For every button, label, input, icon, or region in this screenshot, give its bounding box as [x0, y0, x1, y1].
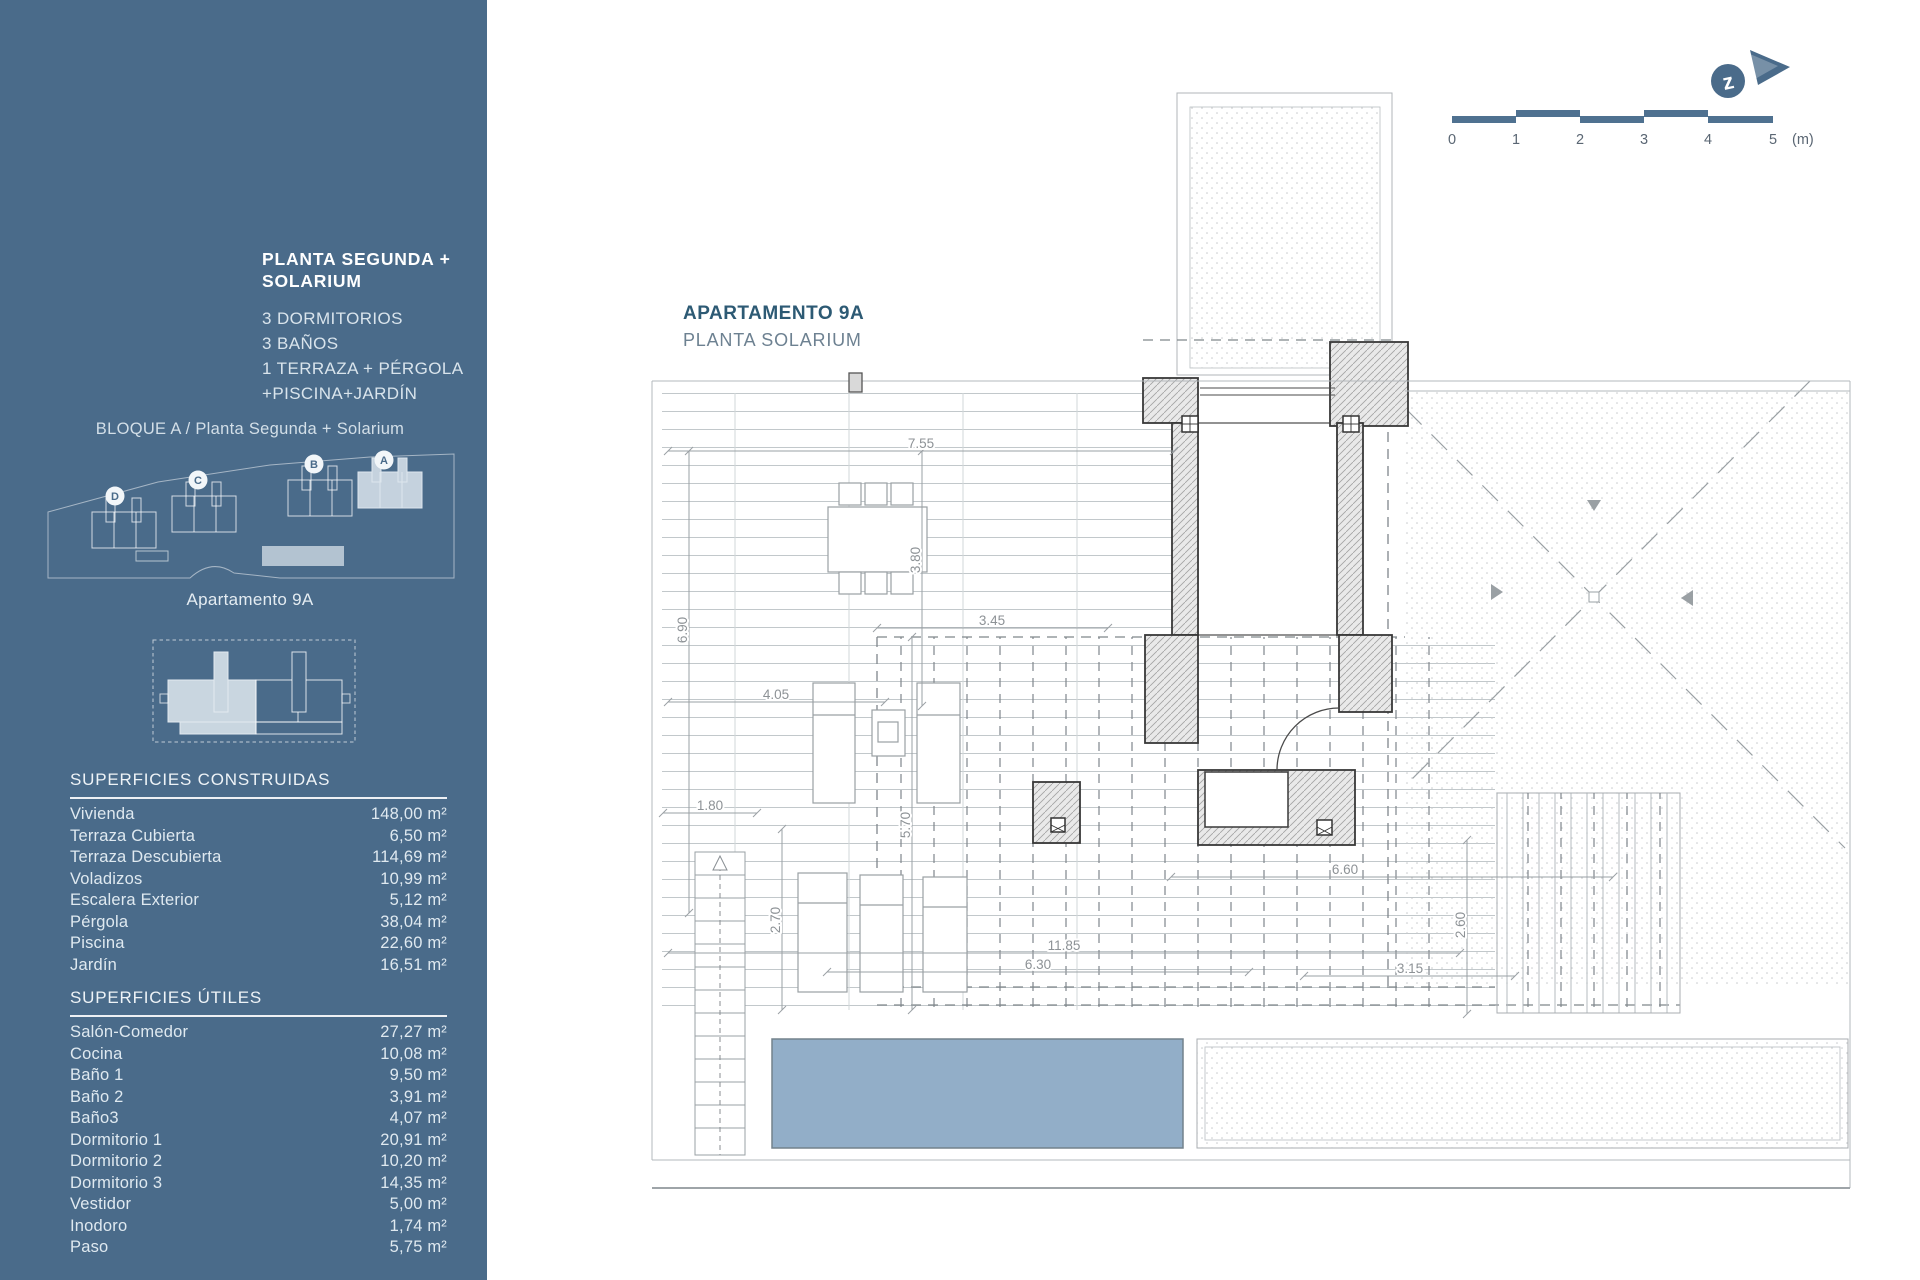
- surface-label: Vestidor: [70, 1194, 131, 1216]
- unit-body-highlight: [168, 680, 256, 722]
- useful-surfaces-table: SUPERFICIES ÚTILES Salón-Comedor27,27 m²…: [70, 988, 447, 1259]
- table-row: Terraza Descubierta114,69 m²: [70, 847, 447, 869]
- built-surfaces-title: SUPERFICIES CONSTRUIDAS: [70, 770, 447, 799]
- floor-title-line2: SOLARIUM: [262, 270, 451, 292]
- built-surfaces-table: SUPERFICIES CONSTRUIDAS Vivienda148,00 m…: [70, 770, 447, 976]
- table-row: Cocina10,08 m²: [70, 1044, 447, 1066]
- surface-label: Voladizos: [70, 869, 142, 891]
- sun-lounger: [860, 875, 903, 992]
- core-lower-opening: [1205, 772, 1288, 827]
- surface-label: Inodoro: [70, 1216, 127, 1238]
- unit-strip-right: [256, 722, 342, 734]
- surface-label: Dormitorio 2: [70, 1151, 162, 1173]
- useful-surfaces-rows: Salón-Comedor27,27 m²Cocina10,08 m²Baño …: [70, 1022, 447, 1259]
- surface-value: 5,75 m²: [390, 1237, 447, 1259]
- chair: [839, 483, 861, 505]
- surface-value: 20,91 m²: [380, 1130, 447, 1152]
- built-surfaces-rows: Vivienda148,00 m²Terraza Cubierta6,50 m²…: [70, 804, 447, 976]
- table-row: Salón-Comedor27,27 m²: [70, 1022, 447, 1044]
- site-pool-small: [136, 551, 168, 561]
- block-label: BLOQUE A / Planta Segunda + Solarium: [50, 420, 450, 439]
- dim-label: 3.15: [1397, 961, 1423, 976]
- surface-value: 1,74 m²: [390, 1216, 447, 1238]
- dim-label: 4.05: [763, 687, 789, 702]
- floor-title-line1: PLANTA SEGUNDA +: [262, 248, 451, 270]
- dim-label: 3.45: [979, 613, 1005, 628]
- table-row: Escalera Exterior5,12 m²: [70, 890, 447, 912]
- unit-diagram: [150, 630, 360, 748]
- lower-loungers: [798, 873, 967, 992]
- site-plan-diagram: D C B A: [40, 450, 460, 598]
- table-row: Baño 19,50 m²: [70, 1065, 447, 1087]
- site-block-b: [288, 466, 352, 516]
- chair: [891, 483, 913, 505]
- unit-chimney-left: [214, 652, 228, 712]
- table-row: Inodoro1,74 m²: [70, 1216, 447, 1238]
- dim-label: 1.80: [697, 798, 723, 813]
- surface-value: 38,04 m²: [380, 912, 447, 934]
- surface-label: Salón-Comedor: [70, 1022, 188, 1044]
- surface-value: 9,50 m²: [390, 1065, 447, 1087]
- surface-label: Baño 2: [70, 1087, 124, 1109]
- dim-label: 11.85: [1048, 938, 1081, 953]
- surface-label: Dormitorio 3: [70, 1173, 162, 1195]
- chair: [891, 572, 913, 594]
- badge-d: D: [111, 491, 119, 503]
- surface-value: 6,50 m²: [390, 826, 447, 848]
- badge-a: A: [380, 455, 388, 467]
- surface-label: Baño3: [70, 1108, 119, 1130]
- surface-value: 10,08 m²: [380, 1044, 447, 1066]
- dim-label: 3.80: [908, 547, 923, 573]
- wall-stub: [849, 373, 862, 392]
- dim-label: 6.60: [1332, 862, 1358, 877]
- feature-list: 3 DORMITORIOS 3 BAÑOS 1 TERRAZA + PÉRGOL…: [262, 306, 463, 406]
- surface-label: Vivienda: [70, 804, 135, 826]
- unit-notch-left: [160, 694, 168, 703]
- table-row: Dormitorio 210,20 m²: [70, 1151, 447, 1173]
- swimming-pool: [772, 1039, 1183, 1148]
- surface-label: Cocina: [70, 1044, 123, 1066]
- dim-label: 6.90: [675, 617, 690, 643]
- feature-item: +PISCINA+JARDÍN: [262, 381, 463, 406]
- unit-chimney-right: [292, 652, 306, 712]
- table-row: Jardín16,51 m²: [70, 955, 447, 977]
- chair: [839, 572, 861, 594]
- page: { "sidebar": { "title_lines": ["PLANTA S…: [0, 0, 1920, 1280]
- table-row: Dormitorio 120,91 m²: [70, 1130, 447, 1152]
- site-block-c: [172, 482, 236, 532]
- feature-item: 1 TERRAZA + PÉRGOLA: [262, 356, 463, 381]
- dim-label: 2.70: [768, 907, 783, 933]
- table-row: Vivienda148,00 m²: [70, 804, 447, 826]
- sun-lounger: [923, 877, 967, 992]
- surface-label: Dormitorio 1: [70, 1130, 162, 1152]
- surface-label: Piscina: [70, 933, 125, 955]
- chair: [865, 572, 887, 594]
- surface-value: 14,35 m²: [380, 1173, 447, 1195]
- surface-label: Jardín: [70, 955, 117, 977]
- surface-label: Escalera Exterior: [70, 890, 199, 912]
- feature-item: 3 BAÑOS: [262, 331, 463, 356]
- surface-label: Baño 1: [70, 1065, 124, 1087]
- surface-label: Pérgola: [70, 912, 128, 934]
- surface-value: 10,99 m²: [380, 869, 447, 891]
- core-beam: [1200, 388, 1335, 395]
- table-row: Pérgola38,04 m²: [70, 912, 447, 934]
- floor-title: PLANTA SEGUNDA + SOLARIUM: [262, 248, 451, 292]
- table-row: Vestidor5,00 m²: [70, 1194, 447, 1216]
- slat-deck-pergola-overlay: [1497, 793, 1680, 1013]
- badge-b: B: [310, 459, 318, 471]
- useful-surfaces-title: SUPERFICIES ÚTILES: [70, 988, 447, 1017]
- chair: [865, 483, 887, 505]
- unit-strip-left: [180, 722, 256, 734]
- surface-value: 16,51 m²: [380, 955, 447, 977]
- feature-item: 3 DORMITORIOS: [262, 306, 463, 331]
- surface-value: 4,07 m²: [390, 1108, 447, 1130]
- unit-notch-right: [342, 694, 350, 703]
- apartment-label: Apartamento 9A: [50, 590, 450, 610]
- surface-value: 148,00 m²: [371, 804, 447, 826]
- table-row: Paso5,75 m²: [70, 1237, 447, 1259]
- surface-value: 10,20 m²: [380, 1151, 447, 1173]
- site-block-d: [92, 498, 156, 548]
- surface-value: 5,12 m²: [390, 890, 447, 912]
- table-row: Voladizos10,99 m²: [70, 869, 447, 891]
- dim-label: 5.70: [898, 812, 913, 838]
- sun-lounger: [917, 683, 960, 803]
- surface-label: Paso: [70, 1237, 108, 1259]
- surface-label: Terraza Descubierta: [70, 847, 221, 869]
- floor-plan: 7.55 3.80 6.90 3.45 4.05 1.80 5.70 2.70 …: [555, 70, 1855, 1195]
- side-table: [872, 710, 905, 756]
- garden-area: [1197, 1039, 1848, 1148]
- table-row: Piscina22,60 m²: [70, 933, 447, 955]
- surface-value: 22,60 m²: [380, 933, 447, 955]
- table-row: Terraza Cubierta6,50 m²: [70, 826, 447, 848]
- table-row: Baño34,07 m²: [70, 1108, 447, 1130]
- surface-value: 5,00 m²: [390, 1194, 447, 1216]
- site-terrace: [262, 546, 344, 566]
- core-void: [1198, 423, 1337, 635]
- sun-lounger: [813, 683, 855, 803]
- surface-value: 114,69 m²: [372, 847, 447, 869]
- sidebar: PLANTA SEGUNDA + SOLARIUM 3 DORMITORIOS …: [0, 0, 487, 1280]
- dim-label: 6.30: [1025, 957, 1051, 972]
- table-row: Baño 23,91 m²: [70, 1087, 447, 1109]
- dining-set: [828, 483, 927, 594]
- surface-value: 27,27 m²: [380, 1022, 447, 1044]
- badge-c: C: [194, 475, 202, 487]
- table-row: Dormitorio 314,35 m²: [70, 1173, 447, 1195]
- dim-label: 7.55: [908, 436, 934, 451]
- surface-value: 3,91 m²: [390, 1087, 447, 1109]
- sun-lounger: [798, 873, 847, 992]
- dim-label: 2.60: [1453, 912, 1468, 938]
- surface-label: Terraza Cubierta: [70, 826, 195, 848]
- exterior-stair: [695, 852, 745, 1155]
- upper-volume-gravel: [1190, 107, 1380, 368]
